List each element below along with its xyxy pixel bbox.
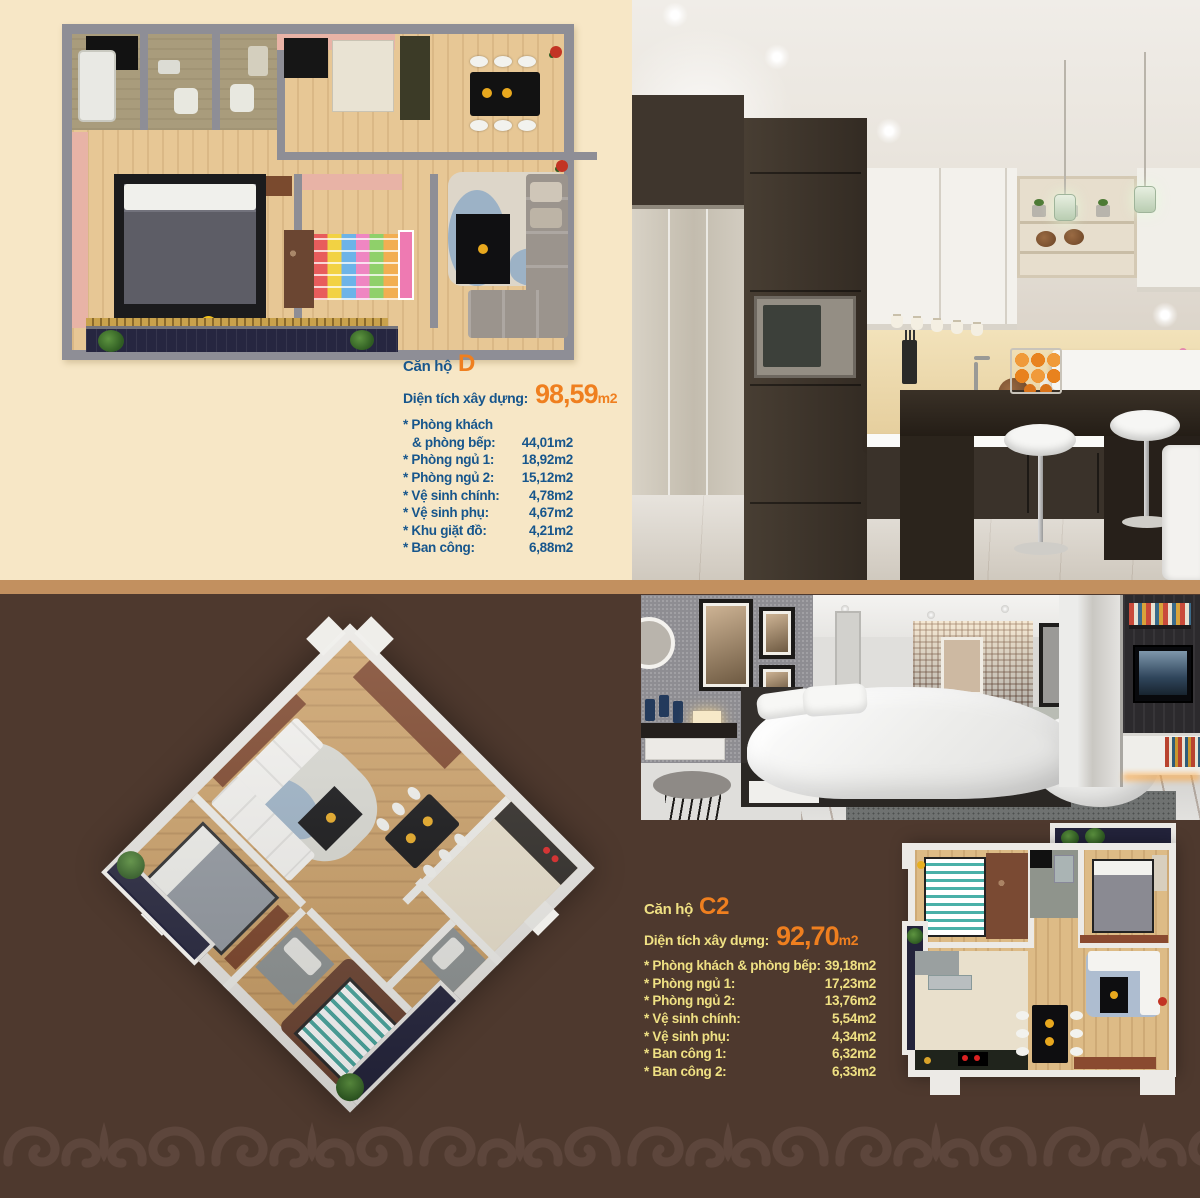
room-spec-row: * Phòng ngủ 2: 15,12m2 xyxy=(403,469,573,487)
flower-decor xyxy=(556,160,568,172)
vanity-drawer xyxy=(645,738,725,760)
room-label: * Vệ sinh chính: xyxy=(403,488,499,503)
bathtub xyxy=(78,50,116,122)
balcony-plant xyxy=(98,330,124,352)
white-upper-cabinets xyxy=(867,168,1017,330)
apartment-label: Căn hộ xyxy=(644,901,693,918)
stove-burner xyxy=(974,1055,980,1061)
dining-chair xyxy=(1016,1029,1029,1038)
bar-table-leg xyxy=(900,436,974,580)
brochure-page: Căn hộD Diện tích xây dựng: 98,59 m2 * P… xyxy=(0,0,1200,1198)
room-spec-row: * Ban công 2: 6,33m2 xyxy=(644,1063,876,1081)
sofa xyxy=(1140,951,1160,1015)
vanity-table xyxy=(641,723,737,738)
ceiling-light xyxy=(662,2,688,28)
wall xyxy=(140,34,148,130)
room-label: * Phòng ngủ 2: xyxy=(644,993,735,1008)
room-label: * Ban công 1: xyxy=(644,1046,726,1061)
vanity-stool xyxy=(653,771,731,799)
room-spec-row: * Vệ sinh chính: 4,78m2 xyxy=(403,486,573,504)
apartment-c2-area: Diện tích xây dựng: 92,70 m2 xyxy=(644,921,858,952)
dining-chair xyxy=(1070,1047,1083,1056)
mirror-panel xyxy=(632,205,744,495)
room-area-value: 44,01m2 xyxy=(522,435,573,450)
dining-chair xyxy=(494,120,512,131)
hanging-cup xyxy=(911,318,923,330)
floorplan-apartment-d xyxy=(62,24,574,360)
room-label: & phòng bếp: xyxy=(403,435,495,450)
hanging-cup xyxy=(971,324,983,336)
apartment-d-title: Căn hộD xyxy=(403,350,475,378)
tv-screen xyxy=(1133,645,1193,703)
room-area-value: 5,54m2 xyxy=(832,1011,876,1026)
area-unit: m2 xyxy=(598,390,618,406)
perfume-bottle xyxy=(645,699,655,721)
dining-chair xyxy=(518,56,536,67)
room-spec-row: * Khu giặt đồ: 4,21m2 xyxy=(403,522,573,540)
island-counter xyxy=(1052,350,1200,390)
wall-stub xyxy=(902,843,910,869)
balcony-plant xyxy=(907,928,923,944)
room-spec-row: * Phòng ngủ 2: 13,76m2 xyxy=(644,992,876,1010)
room-area-value: 4,34m2 xyxy=(832,1029,876,1044)
apartment-label: Căn hộ xyxy=(403,358,452,375)
hanging-cup xyxy=(931,320,943,332)
sofa xyxy=(468,290,568,338)
kitchen-sink xyxy=(928,975,972,990)
room-spec-row: * Vệ sinh phụ: 4,67m2 xyxy=(403,504,573,522)
wall xyxy=(915,942,1034,948)
room-area-value: 39,18m2 xyxy=(825,958,876,973)
dining-chair xyxy=(1070,1011,1083,1020)
upper-dark-cabinet xyxy=(632,95,744,207)
pillows xyxy=(124,184,256,210)
apartment-d-room-list: * Phòng khách & phòng bếp: 44,01m2 * Phò… xyxy=(403,416,573,557)
ceiling-light xyxy=(764,44,790,70)
entry-door xyxy=(284,38,328,78)
wooden-bowl xyxy=(1064,229,1084,245)
room-spec-row: * Phòng ngủ 1: 18,92m2 xyxy=(403,451,573,469)
ceiling-light xyxy=(1001,605,1009,613)
ceiling-light xyxy=(1152,302,1178,328)
wall-art-frame xyxy=(759,607,795,659)
apartment-d-area: Diện tích xây dựng: 98,59 m2 xyxy=(403,379,617,410)
under-cabinet-glow xyxy=(1123,773,1200,781)
orange-fruit-basket xyxy=(1010,348,1062,394)
tv-cabinet xyxy=(1074,1057,1156,1069)
kids-room-wall-accent xyxy=(302,174,402,190)
table-flower xyxy=(1045,1037,1054,1046)
stool-pole xyxy=(1144,438,1149,520)
table-flower xyxy=(1045,1019,1054,1028)
room-label: * Ban công 2: xyxy=(644,1064,726,1079)
stove-burner xyxy=(962,1055,968,1061)
room-label: * Phòng khách xyxy=(403,417,493,432)
room-area-value: 4,67m2 xyxy=(529,505,573,520)
toilet xyxy=(230,84,254,112)
balcony-plant xyxy=(350,330,374,350)
room-area-value: 6,33m2 xyxy=(832,1064,876,1079)
dining-chair xyxy=(470,120,488,131)
room-label: * Vệ sinh phụ: xyxy=(403,505,489,520)
room-label: * Vệ sinh phụ: xyxy=(644,1029,730,1044)
room-label: * Phòng khách & phòng bếp: xyxy=(644,958,821,973)
kitchen-cabinet xyxy=(915,951,959,975)
flower-decor xyxy=(1158,997,1167,1006)
room-spec-row: * Phòng khách & phòng bếp: 39,18m2 xyxy=(644,957,876,975)
decor-dot xyxy=(924,1057,931,1064)
room-area-value: 6,32m2 xyxy=(832,1046,876,1061)
wall-stub xyxy=(930,1075,960,1095)
nightstand xyxy=(266,176,292,196)
shower xyxy=(1054,855,1074,883)
room-spec-row: * Phòng ngủ 1: 17,23m2 xyxy=(644,975,876,993)
wall xyxy=(430,174,438,328)
stool-pole xyxy=(1038,450,1043,546)
kids-crib xyxy=(398,230,414,300)
wall xyxy=(212,34,220,130)
dining-chair xyxy=(470,56,488,67)
bedroom-wall-accent xyxy=(72,132,88,328)
room-area-value: 6,88m2 xyxy=(529,540,573,555)
room-label: * Phòng ngủ 1: xyxy=(644,976,735,991)
room-area-value: 4,78m2 xyxy=(529,488,573,503)
kitchen-photo xyxy=(632,0,1200,580)
dining-chair xyxy=(494,56,512,67)
apartment-c2-room-list: * Phòng khách & phòng bếp: 39,18m2 * Phò… xyxy=(644,957,876,1080)
bedside-lamp xyxy=(917,861,925,869)
mosaic-strip xyxy=(86,318,388,326)
bedroom-2-bed xyxy=(1092,859,1154,933)
room-spec-row: & phòng bếp: 44,01m2 xyxy=(403,434,573,452)
room-label: * Phòng ngủ 1: xyxy=(403,452,494,467)
wall xyxy=(1078,943,1169,948)
room-spec-row: * Ban công: 6,88m2 xyxy=(403,539,573,557)
pendant-cord xyxy=(1064,60,1066,196)
room-spec-row: * Vệ sinh chính: 5,54m2 xyxy=(644,1010,876,1028)
white-chair xyxy=(1162,445,1200,580)
bathroom-door xyxy=(1030,850,1052,868)
sofa-cushion xyxy=(530,208,562,228)
apartment-code: C2 xyxy=(699,893,729,920)
laundry-unit xyxy=(248,46,268,76)
patterned-rug xyxy=(284,230,314,308)
bedroom-1-bed xyxy=(924,857,986,937)
table-flower xyxy=(1110,991,1118,999)
pendant-lamp xyxy=(1134,186,1156,213)
dining-chair xyxy=(1016,1047,1029,1056)
sofa-cushion xyxy=(530,182,562,202)
wall-art-frame xyxy=(699,599,753,691)
ceiling-light xyxy=(876,118,902,144)
wall-stub xyxy=(1140,1075,1175,1095)
sink xyxy=(158,60,180,74)
wall xyxy=(277,152,597,160)
decorative-scroll-border xyxy=(0,1112,1200,1170)
bedroom-photo xyxy=(641,595,1200,820)
closet xyxy=(1152,855,1167,891)
room-label: * Vệ sinh chính: xyxy=(644,1011,740,1026)
perfume-bottle xyxy=(673,701,683,723)
room-spec-row: * Ban công 1: 6,32m2 xyxy=(644,1045,876,1063)
bedroom-1-rug xyxy=(986,853,1030,939)
blanket xyxy=(124,212,256,304)
wardrobe xyxy=(1059,595,1123,787)
apartment-code: D xyxy=(458,350,475,377)
room-area-value: 15,12m2 xyxy=(522,470,573,485)
pendant-lamp xyxy=(1054,194,1076,221)
area-unit: m2 xyxy=(839,932,859,948)
room-area-value: 13,76m2 xyxy=(825,993,876,1008)
wooden-bowl xyxy=(1036,231,1056,247)
open-shelf-unit xyxy=(1017,176,1137,278)
room-label: * Phòng ngủ 2: xyxy=(403,470,494,485)
book-niche xyxy=(1165,737,1200,767)
hanging-cup xyxy=(891,316,903,328)
bar-stool xyxy=(1110,410,1180,441)
area-value: 92,70 xyxy=(776,921,839,952)
kids-colorful-rug xyxy=(314,234,398,300)
shelf-books xyxy=(1129,603,1191,629)
apartment-c2-title: Căn hộC2 xyxy=(644,893,729,921)
room-label: * Ban công: xyxy=(403,540,475,555)
table-flower xyxy=(478,244,488,254)
plant-pot xyxy=(1032,205,1046,217)
area-label: Diện tích xây dựng: xyxy=(403,390,528,406)
perfume-bottle xyxy=(659,695,669,717)
section-divider xyxy=(0,580,1200,594)
vanity-mirror xyxy=(941,637,983,695)
stool-base xyxy=(1014,542,1068,555)
area-value: 98,59 xyxy=(535,379,598,410)
room-spec-row: * Vệ sinh phụ: 4,34m2 xyxy=(644,1027,876,1045)
dining-chair xyxy=(518,120,536,131)
flower-decor xyxy=(550,46,562,58)
dining-chair xyxy=(1016,1011,1029,1020)
table-flower xyxy=(502,88,512,98)
hanging-cup xyxy=(951,322,963,334)
microwave-oven xyxy=(754,296,856,378)
pillow xyxy=(802,683,868,717)
plant-pot xyxy=(1096,205,1110,217)
foyer-closet xyxy=(332,40,394,112)
bar-stool xyxy=(1004,424,1076,456)
pendant-cord xyxy=(1144,52,1146,188)
dining-chair xyxy=(1070,1029,1083,1038)
master-bed xyxy=(114,174,266,326)
dining-table xyxy=(1032,1005,1068,1063)
room-area-value: 17,23m2 xyxy=(825,976,876,991)
knife-block xyxy=(902,340,917,384)
kitchen-counter xyxy=(400,36,430,120)
ceiling-light xyxy=(927,611,935,619)
table-flower xyxy=(482,88,492,98)
room-label: * Khu giặt đồ: xyxy=(403,523,487,538)
room-area-value: 4,21m2 xyxy=(529,523,573,538)
wall xyxy=(1078,850,1084,946)
room-spec-row: * Phòng khách xyxy=(403,416,573,434)
floorplan-apartment-c2-top-view xyxy=(902,823,1185,1105)
toilet xyxy=(174,88,198,114)
room-area-value: 18,92m2 xyxy=(522,452,573,467)
area-label: Diện tích xây dựng: xyxy=(644,932,769,948)
